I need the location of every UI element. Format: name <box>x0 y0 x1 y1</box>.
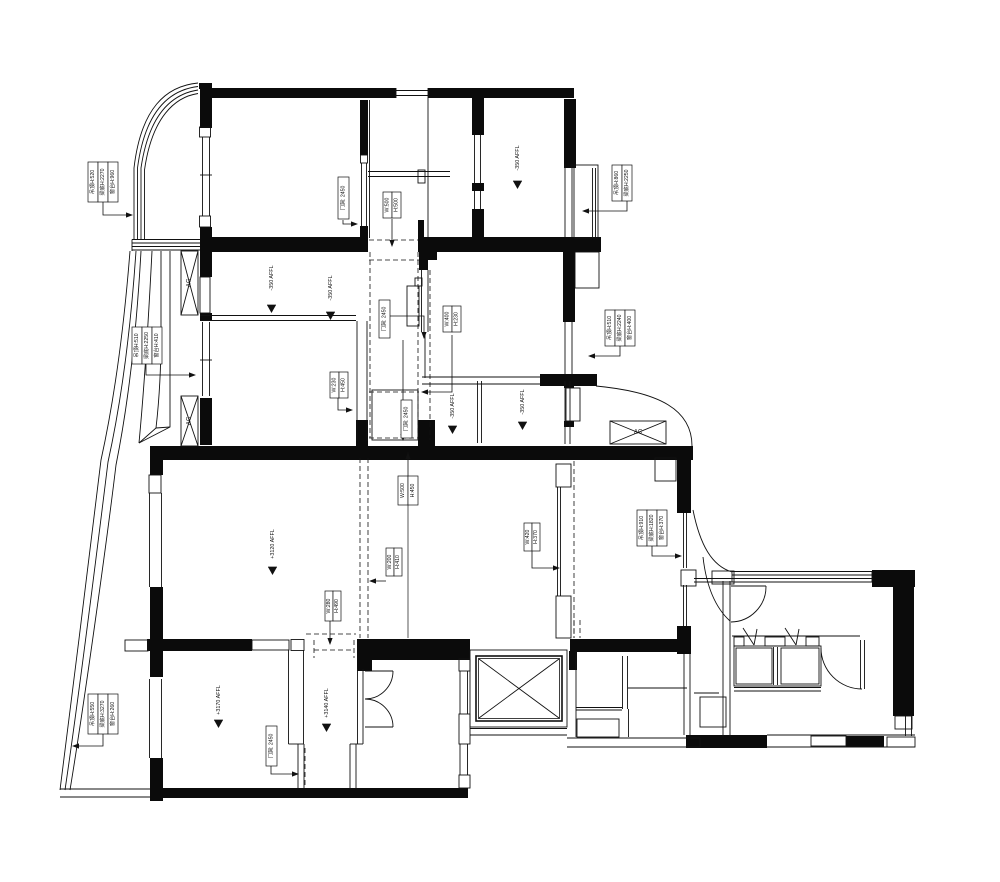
svg-text:-350 AFFL: -350 AFFL <box>328 275 334 300</box>
svg-text:W:230: W:230 <box>332 377 338 392</box>
svg-text:吊顶H:520: 吊顶H:520 <box>89 170 96 194</box>
svg-text:吊顶H:510: 吊顶H:510 <box>606 316 613 340</box>
svg-text:H:500: H:500 <box>394 198 400 212</box>
svg-text:-350 AFFL: -350 AFFL <box>269 265 275 290</box>
svg-text:H:450: H:450 <box>341 378 347 392</box>
svg-text:梁底H:2250: 梁底H:2250 <box>622 169 630 196</box>
svg-text:H:450: H:450 <box>410 483 416 497</box>
svg-text:H:410: H:410 <box>395 555 401 569</box>
svg-text:W:200: W:200 <box>387 554 393 569</box>
svg-text:W:400: W:400 <box>445 311 451 326</box>
svg-text:窗台H:260: 窗台H:260 <box>108 702 116 726</box>
svg-text:AC: AC <box>634 430 643 436</box>
svg-text:梁底H:3270: 梁底H:3270 <box>98 700 106 727</box>
svg-text:吊顶H:510: 吊顶H:510 <box>133 333 140 357</box>
svg-text:梁底H:1820: 梁底H:1820 <box>647 514 655 541</box>
svg-text:H:370: H:370 <box>533 530 539 544</box>
svg-text:吊顶H:550: 吊顶H:550 <box>89 702 96 726</box>
svg-text:-350 AFFL: -350 AFFL <box>450 393 456 418</box>
svg-text:+3120 AFFL: +3120 AFFL <box>270 529 276 559</box>
svg-text:门洞: 2450: 门洞: 2450 <box>402 406 410 431</box>
svg-text:W:500: W:500 <box>400 483 406 498</box>
svg-text:+3170 AFFL: +3170 AFFL <box>216 685 222 715</box>
svg-text:W:500: W:500 <box>385 197 391 212</box>
svg-text:W:280: W:280 <box>326 598 332 613</box>
svg-text:窗台H:410: 窗台H:410 <box>152 333 160 357</box>
svg-text:窗台H:370: 窗台H:370 <box>657 516 665 540</box>
svg-text:吊顶H:860: 吊顶H:860 <box>613 171 620 195</box>
svg-text:门洞: 2450: 门洞: 2450 <box>380 306 388 331</box>
svg-text:-350 AFFL: -350 AFFL <box>520 389 526 414</box>
svg-text:AC: AC <box>187 278 193 287</box>
svg-text:门洞: 2450: 门洞: 2450 <box>339 185 347 210</box>
svg-text:窗台H:960: 窗台H:960 <box>108 170 116 194</box>
svg-text:窗台H:400: 窗台H:400 <box>625 316 633 340</box>
svg-text:+3140 AFFL: +3140 AFFL <box>324 688 330 718</box>
svg-text:H:230: H:230 <box>454 312 460 326</box>
svg-text:梁底H:2240: 梁底H:2240 <box>615 314 623 341</box>
svg-text:AC: AC <box>187 416 193 425</box>
svg-text:门洞: 2450: 门洞: 2450 <box>267 733 275 758</box>
svg-text:H:490: H:490 <box>334 599 340 613</box>
svg-text:-350 AFFL: -350 AFFL <box>515 145 521 170</box>
svg-text:W:420: W:420 <box>525 529 531 544</box>
svg-text:梁底H:2270: 梁底H:2270 <box>98 168 106 195</box>
svg-text:吊顶H:910: 吊顶H:910 <box>638 516 645 540</box>
svg-text:梁底H:2250: 梁底H:2250 <box>142 332 150 359</box>
